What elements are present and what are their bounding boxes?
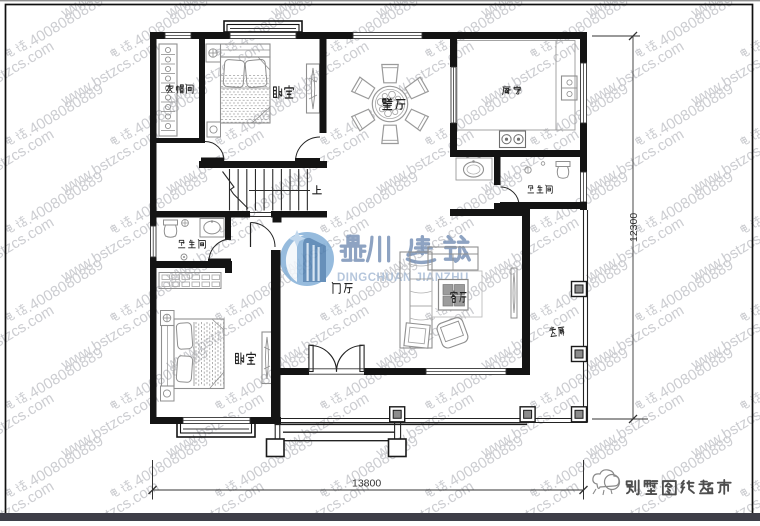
svg-text:12300: 12300: [628, 213, 640, 242]
svg-text:13800: 13800: [352, 478, 381, 490]
